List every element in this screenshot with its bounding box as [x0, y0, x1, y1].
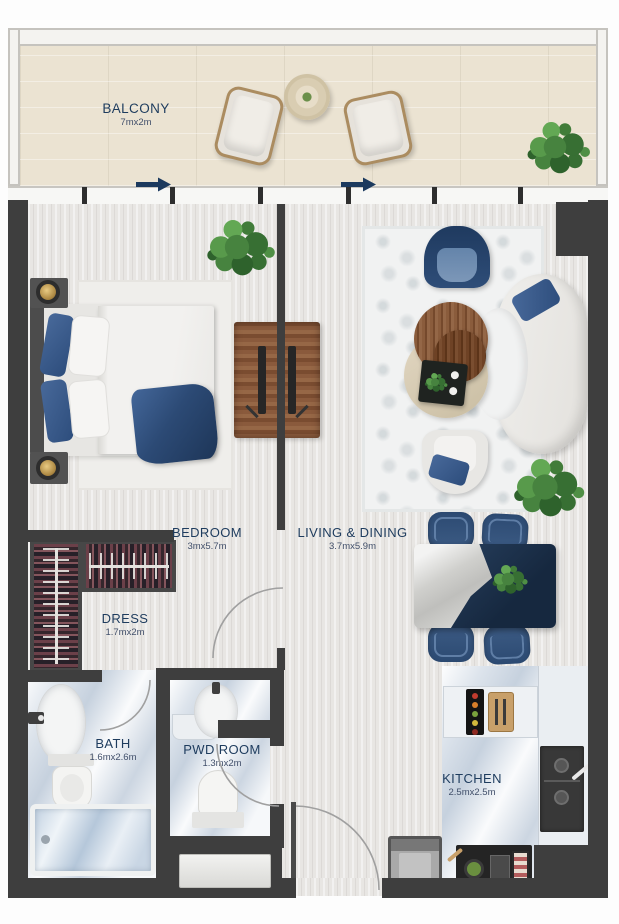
window-mullion — [258, 187, 263, 204]
dress-label: DRESS 1.7mx2m — [60, 611, 190, 638]
bedside-lamp-top — [36, 280, 60, 304]
exterior-wall-left — [8, 200, 28, 898]
tv-bracket — [245, 405, 258, 418]
tray-plant — [431, 378, 440, 387]
bathtub — [30, 804, 156, 876]
toilet-seat — [60, 774, 84, 802]
wardrobe-vertical — [30, 540, 82, 672]
window-mullion — [432, 187, 437, 204]
tray-cup — [450, 371, 459, 380]
serving-tray — [418, 360, 468, 407]
tv-bracket — [295, 405, 308, 418]
tv-left — [258, 346, 266, 414]
cooking-pan — [464, 859, 484, 879]
dining-chair-rim — [434, 633, 468, 657]
tv-right — [288, 346, 296, 414]
sink-basin — [554, 790, 569, 805]
barrel-chair-cushion — [437, 248, 477, 282]
wardrobe-rail — [55, 548, 58, 665]
vegetable-tray — [466, 689, 484, 735]
bedside-lamp-bottom — [36, 456, 60, 480]
window-mullion — [82, 187, 87, 204]
balcony-railing-top — [8, 28, 608, 46]
exterior-wall-right — [588, 200, 608, 898]
white-pillow — [67, 314, 110, 377]
room-name: BATH — [50, 736, 176, 751]
bath-faucet — [28, 712, 44, 724]
utensil — [503, 699, 506, 725]
room-name: KITCHEN — [410, 771, 534, 786]
dining-centerpiece-plant — [502, 573, 515, 586]
entry-closet-door — [179, 854, 271, 888]
room-name: BEDROOM — [132, 525, 282, 540]
dining-chair-rim — [488, 518, 523, 544]
balcony-plant — [544, 136, 567, 159]
balcony-round-table — [284, 74, 330, 120]
entry-threshold — [296, 878, 382, 896]
sink-divider — [544, 780, 580, 782]
dining-chair-rim — [434, 517, 468, 541]
pwd-toilet-tank — [192, 812, 244, 828]
room-dims: 2.5mx2.5m — [410, 787, 534, 798]
room-dims: 3.7mx5.9m — [280, 541, 425, 552]
wardrobe-rail — [89, 565, 170, 568]
vegetables — [472, 693, 478, 699]
room-name: BALCONY — [62, 101, 210, 116]
bath-label: BATH 1.6mx2.6m — [50, 736, 176, 763]
room-dims: 3mx5.7m — [132, 541, 282, 552]
divider-wall-stub — [277, 648, 285, 670]
bath-top-wall — [28, 670, 102, 682]
window-mullion — [346, 187, 351, 204]
pwd-right-wall-lower — [270, 804, 284, 840]
room-name: DRESS — [60, 611, 190, 626]
dining-chair — [483, 623, 531, 665]
white-pillow — [68, 378, 111, 439]
tray-cup — [449, 387, 458, 396]
pwd-niche-wall — [218, 720, 284, 738]
dining-chair-rim — [490, 634, 525, 660]
pwd-top-wall — [156, 668, 284, 680]
kitchen-sink-unit — [540, 746, 584, 832]
room-dims: 1.7mx2m — [60, 627, 190, 638]
room-name: PWD ROOM — [160, 742, 284, 757]
balcony-label: BALCONY 7mx2m — [62, 101, 210, 128]
window-mullion — [170, 187, 175, 204]
living-barrel-chair — [424, 226, 490, 288]
bed-throw-blanket — [130, 382, 219, 466]
wall-block-bottom-right — [534, 845, 608, 898]
tub-drain — [41, 835, 50, 844]
window-mullion — [518, 187, 523, 204]
dining-table — [414, 544, 556, 628]
column-top-right — [556, 202, 608, 256]
bed-headboard — [30, 304, 44, 454]
dining-chair — [428, 622, 474, 662]
living-dining-label: LIVING & DINING 3.7mx5.9m — [280, 525, 425, 552]
kitchen-label: KITCHEN 2.5mx2.5m — [410, 771, 534, 798]
room-name: LIVING & DINING — [280, 525, 425, 540]
bedroom-living-divider-wall — [277, 204, 285, 530]
pwd-faucet — [212, 682, 220, 694]
floor-plan: BALCONY 7mx2m BEDROOM 3mx5.7m LIVING & D… — [0, 0, 619, 924]
balcony-armchair-cushion — [222, 94, 276, 158]
room-dims: 7mx2m — [62, 117, 210, 128]
pwd-toilet-bowl — [198, 770, 238, 816]
room-dims: 1.6mx2.6m — [50, 752, 176, 763]
cutting-board — [488, 692, 514, 732]
balcony-armchair-cushion — [351, 98, 405, 158]
dining-tablecloth — [414, 544, 556, 628]
bedroom-label: BEDROOM 3mx5.7m — [132, 525, 282, 552]
bedroom-plant — [225, 235, 249, 259]
sink-basin — [554, 758, 569, 773]
utensil — [495, 699, 498, 725]
pwd-room-label: PWD ROOM 1.3mx2m — [160, 742, 284, 769]
room-dims: 1.3mx2m — [160, 758, 284, 769]
faucet-handle — [38, 715, 44, 721]
balcony-railing-left — [8, 28, 20, 186]
balcony-railing-right — [596, 28, 608, 186]
living-plant — [532, 474, 557, 499]
